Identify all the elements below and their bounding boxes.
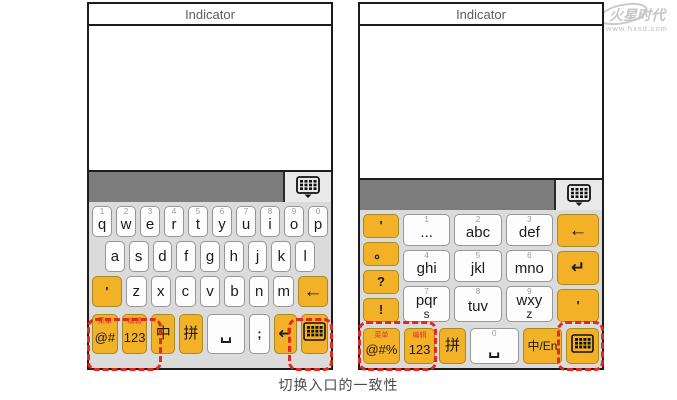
t9-keyboard: '。?! 1...2abc3def4ghi5jkl6mno7pqrs8tuv9w… (360, 210, 602, 368)
key-label: ? (377, 275, 385, 289)
key-label: ↵ (571, 259, 585, 277)
watermark-url: www.hxsd.com (605, 24, 668, 33)
keyboard-panel-icon[interactable] (554, 180, 602, 210)
key-punctuation[interactable]: ; (249, 314, 269, 354)
key-label: x (157, 284, 165, 300)
key-numbers-switch[interactable]: 编辑123 (122, 314, 148, 354)
key-row-bottom: 菜单@#编辑123中拼␣;↵ (90, 312, 330, 356)
screenshot-canvas: 火星时代 www.hxsd.com Indicator 1 (0, 0, 677, 400)
key-label: c (182, 284, 190, 300)
key-z[interactable]: z (126, 276, 147, 307)
indicator-title: Indicator (185, 7, 235, 22)
key-label: y (218, 217, 226, 233)
key-label: o (290, 217, 298, 233)
key-label: @#% (365, 343, 397, 357)
key-s[interactable]: s (129, 241, 149, 272)
key-label: h (230, 249, 238, 265)
indicator-title: Indicator (456, 7, 506, 22)
key-sub-label: 5 (476, 252, 480, 260)
key-label: def (519, 225, 540, 241)
key-r[interactable]: 4r (164, 206, 184, 237)
key-label: f (184, 249, 188, 265)
key-apostrophe[interactable]: ' (557, 289, 599, 322)
key-label: ← (304, 282, 323, 302)
key-sub-label: 0 (492, 330, 496, 338)
key-def[interactable]: 3def (506, 214, 553, 246)
key-label: i (268, 217, 271, 233)
key-label: q (98, 217, 106, 233)
key-question-mark[interactable]: ? (363, 270, 399, 294)
key-sub-label: 1 (100, 208, 104, 216)
key-sub-label: 3 (527, 216, 531, 224)
key-label: e (146, 217, 154, 233)
key-label: 拼 (183, 326, 198, 342)
key-abc[interactable]: 2abc (454, 214, 501, 246)
t9-grid: 1...2abc3def4ghi5jkl6mno7pqrs8tuv9wxyz (401, 212, 555, 324)
key-label: j (256, 249, 259, 265)
key-label: g (206, 249, 214, 265)
key-apostrophe[interactable]: ' (92, 276, 122, 307)
key-label: 中/En (527, 340, 557, 353)
key-sub-label: 4 (424, 252, 428, 260)
key-sub-label: 7 (424, 288, 428, 296)
key-h[interactable]: h (224, 241, 244, 272)
watermark-brand: 火星时代 (609, 7, 667, 23)
key-exclamation-mark[interactable]: ! (363, 298, 399, 322)
key-label: jkl (471, 261, 485, 277)
keyboard-grid-icon (295, 176, 321, 198)
key-label: ␣ (220, 325, 232, 343)
key-label: w (121, 217, 132, 233)
key-c[interactable]: c (175, 276, 196, 307)
key-label: 123 (409, 343, 431, 357)
key-symbols-switch[interactable]: 菜单@#% (363, 328, 400, 364)
key-numbers-switch[interactable]: 编辑123 (404, 328, 435, 364)
key-enter[interactable]: ↵ (274, 314, 298, 354)
key-tuv[interactable]: 8tuv (454, 286, 501, 322)
key-label-2: z (526, 308, 532, 321)
key-label: ghi (417, 261, 437, 277)
longpress-hint: 编辑 (413, 332, 427, 339)
key-g[interactable]: g (200, 241, 220, 272)
key-k[interactable]: k (271, 241, 291, 272)
key-enter[interactable]: ↵ (557, 251, 599, 284)
phone-right: Indicator '。?! 1...2abc3def4ghi5jkl6m (358, 2, 604, 370)
key-backspace[interactable]: ← (557, 214, 599, 247)
key-jkl[interactable]: 5jkl (454, 250, 501, 282)
key-sub-label: 0 (316, 208, 320, 216)
watermark-logo: 火星时代 www.hxsd.com (597, 0, 677, 40)
key-q[interactable]: 1q (92, 206, 112, 237)
ime-toolbar (360, 178, 602, 210)
key-l[interactable]: l (295, 241, 315, 272)
key-b[interactable]: b (224, 276, 245, 307)
function-column: ←↵' (555, 212, 601, 324)
longpress-hint: 菜单 (374, 332, 388, 339)
key-label: b (230, 284, 238, 300)
key-sub-label: 8 (476, 288, 480, 296)
key-mno[interactable]: 6mno (506, 250, 553, 282)
key-backspace[interactable]: ← (298, 276, 328, 307)
key-sub-label: 9 (292, 208, 296, 216)
key-label: ␣ (488, 340, 500, 358)
key-pqr[interactable]: 7pqrs (403, 286, 450, 322)
key-label: ' (576, 299, 579, 313)
key-apostrophe[interactable]: ' (363, 214, 399, 238)
key-sub-label: 8 (268, 208, 272, 216)
key-sub-label: 3 (148, 208, 152, 216)
key-sub-label: 1 (424, 216, 428, 224)
key-row-1: 1q2w3e4r5t6y7u8i9o0p (90, 204, 330, 239)
key-label: 中 (156, 326, 171, 342)
qwerty-keyboard: 1q2w3e4r5t6y7u8i9o0p asdfghjkl 'zxcvbnm←… (89, 202, 331, 368)
key-j[interactable]: j (248, 241, 268, 272)
key-label: v (206, 284, 214, 300)
key-sub-label: 6 (527, 252, 531, 260)
key-keyboard-switch[interactable] (566, 328, 599, 364)
key-label: ← (569, 221, 588, 241)
key-f[interactable]: f (176, 241, 196, 272)
key-label: ; (257, 327, 261, 341)
key-full-stop[interactable]: 。 (363, 242, 399, 266)
key-label: ! (379, 303, 383, 317)
keyboard-grid-icon (303, 322, 326, 346)
key-...[interactable]: 1... (403, 214, 450, 246)
key-symbols-switch[interactable]: 菜单@# (92, 314, 118, 354)
titlebar: Indicator (89, 4, 331, 26)
longpress-hint: 菜单 (98, 318, 112, 325)
key-u[interactable]: 7u (236, 206, 256, 237)
text-input-screen[interactable] (89, 26, 331, 170)
key-label: 。 (374, 247, 387, 261)
key-label: s (135, 249, 143, 265)
key-label: ' (379, 219, 382, 233)
key-space[interactable]: ␣ (207, 314, 246, 354)
key-label: 拼 (445, 338, 460, 354)
key-ghi[interactable]: 4ghi (403, 250, 450, 282)
key-label: 123 (124, 331, 146, 345)
key-label: n (255, 284, 263, 300)
key-label-2: s (424, 308, 430, 321)
key-row-bottom: 菜单@#%编辑123拼0␣中/En (361, 326, 601, 366)
key-d[interactable]: d (153, 241, 173, 272)
key-sub-label: 5 (196, 208, 200, 216)
key-sub-label: 2 (124, 208, 128, 216)
longpress-hint: 编辑 (128, 318, 142, 325)
t9-main-area: '。?! 1...2abc3def4ghi5jkl6mno7pqrs8tuv9w… (361, 212, 601, 324)
key-n[interactable]: n (249, 276, 270, 307)
key-label: p (314, 217, 322, 233)
key-m[interactable]: m (273, 276, 294, 307)
key-label: u (242, 217, 250, 233)
key-sub-label: 9 (527, 288, 531, 296)
key-sub-label: 6 (220, 208, 224, 216)
key-sub-label: 2 (476, 216, 480, 224)
key-sub-label: 4 (172, 208, 176, 216)
key-keyboard-switch[interactable] (301, 314, 328, 354)
key-space[interactable]: 0␣ (470, 328, 519, 364)
key-t[interactable]: 5t (188, 206, 208, 237)
key-w[interactable]: 2w (116, 206, 136, 237)
key-o[interactable]: 9o (284, 206, 304, 237)
ime-toolbar (89, 170, 331, 202)
key-wxy[interactable]: 9wxyz (506, 286, 553, 322)
punctuation-column: '。?! (361, 212, 401, 324)
key-i[interactable]: 8i (260, 206, 280, 237)
key-row-2: asdfghjkl (90, 239, 330, 274)
key-label: ' (105, 285, 108, 299)
key-label: t (196, 217, 200, 233)
key-label: l (303, 249, 306, 265)
key-label: k (278, 249, 286, 265)
key-label: d (158, 249, 166, 265)
key-x[interactable]: x (151, 276, 172, 307)
key-sub-label: 7 (244, 208, 248, 216)
key-pinyin-mode[interactable]: 拼 (179, 314, 203, 354)
keyboard-grid-icon (571, 334, 594, 358)
key-pinyin-mode[interactable]: 拼 (439, 328, 466, 364)
key-label: z (132, 284, 140, 300)
key-row-3: 'zxcvbnm← (90, 274, 330, 309)
titlebar: Indicator (360, 4, 602, 26)
key-v[interactable]: v (200, 276, 221, 307)
text-input-screen[interactable] (360, 26, 602, 178)
key-label: r (172, 217, 177, 233)
key-p[interactable]: 0p (308, 206, 328, 237)
caption: 切换入口的一致性 (0, 375, 677, 395)
key-label: ... (420, 225, 433, 241)
key-label: ↵ (278, 325, 292, 343)
key-label: tuv (468, 299, 488, 315)
key-y[interactable]: 6y (212, 206, 232, 237)
key-lang-toggle[interactable]: 中/En (523, 328, 563, 364)
key-label: m (278, 284, 291, 300)
key-label: a (111, 249, 119, 265)
key-label: abc (466, 225, 490, 241)
key-e[interactable]: 3e (140, 206, 160, 237)
key-chinese-mode[interactable]: 中 (151, 314, 175, 354)
key-label: mno (515, 261, 544, 277)
keyboard-panel-icon[interactable] (283, 172, 331, 202)
phone-left: Indicator 1q2w3e4r5t6y7u8i9o0p asdfghjkl… (87, 2, 333, 370)
keyboard-grid-icon (566, 184, 592, 206)
key-a[interactable]: a (105, 241, 125, 272)
key-label: @# (95, 331, 115, 345)
